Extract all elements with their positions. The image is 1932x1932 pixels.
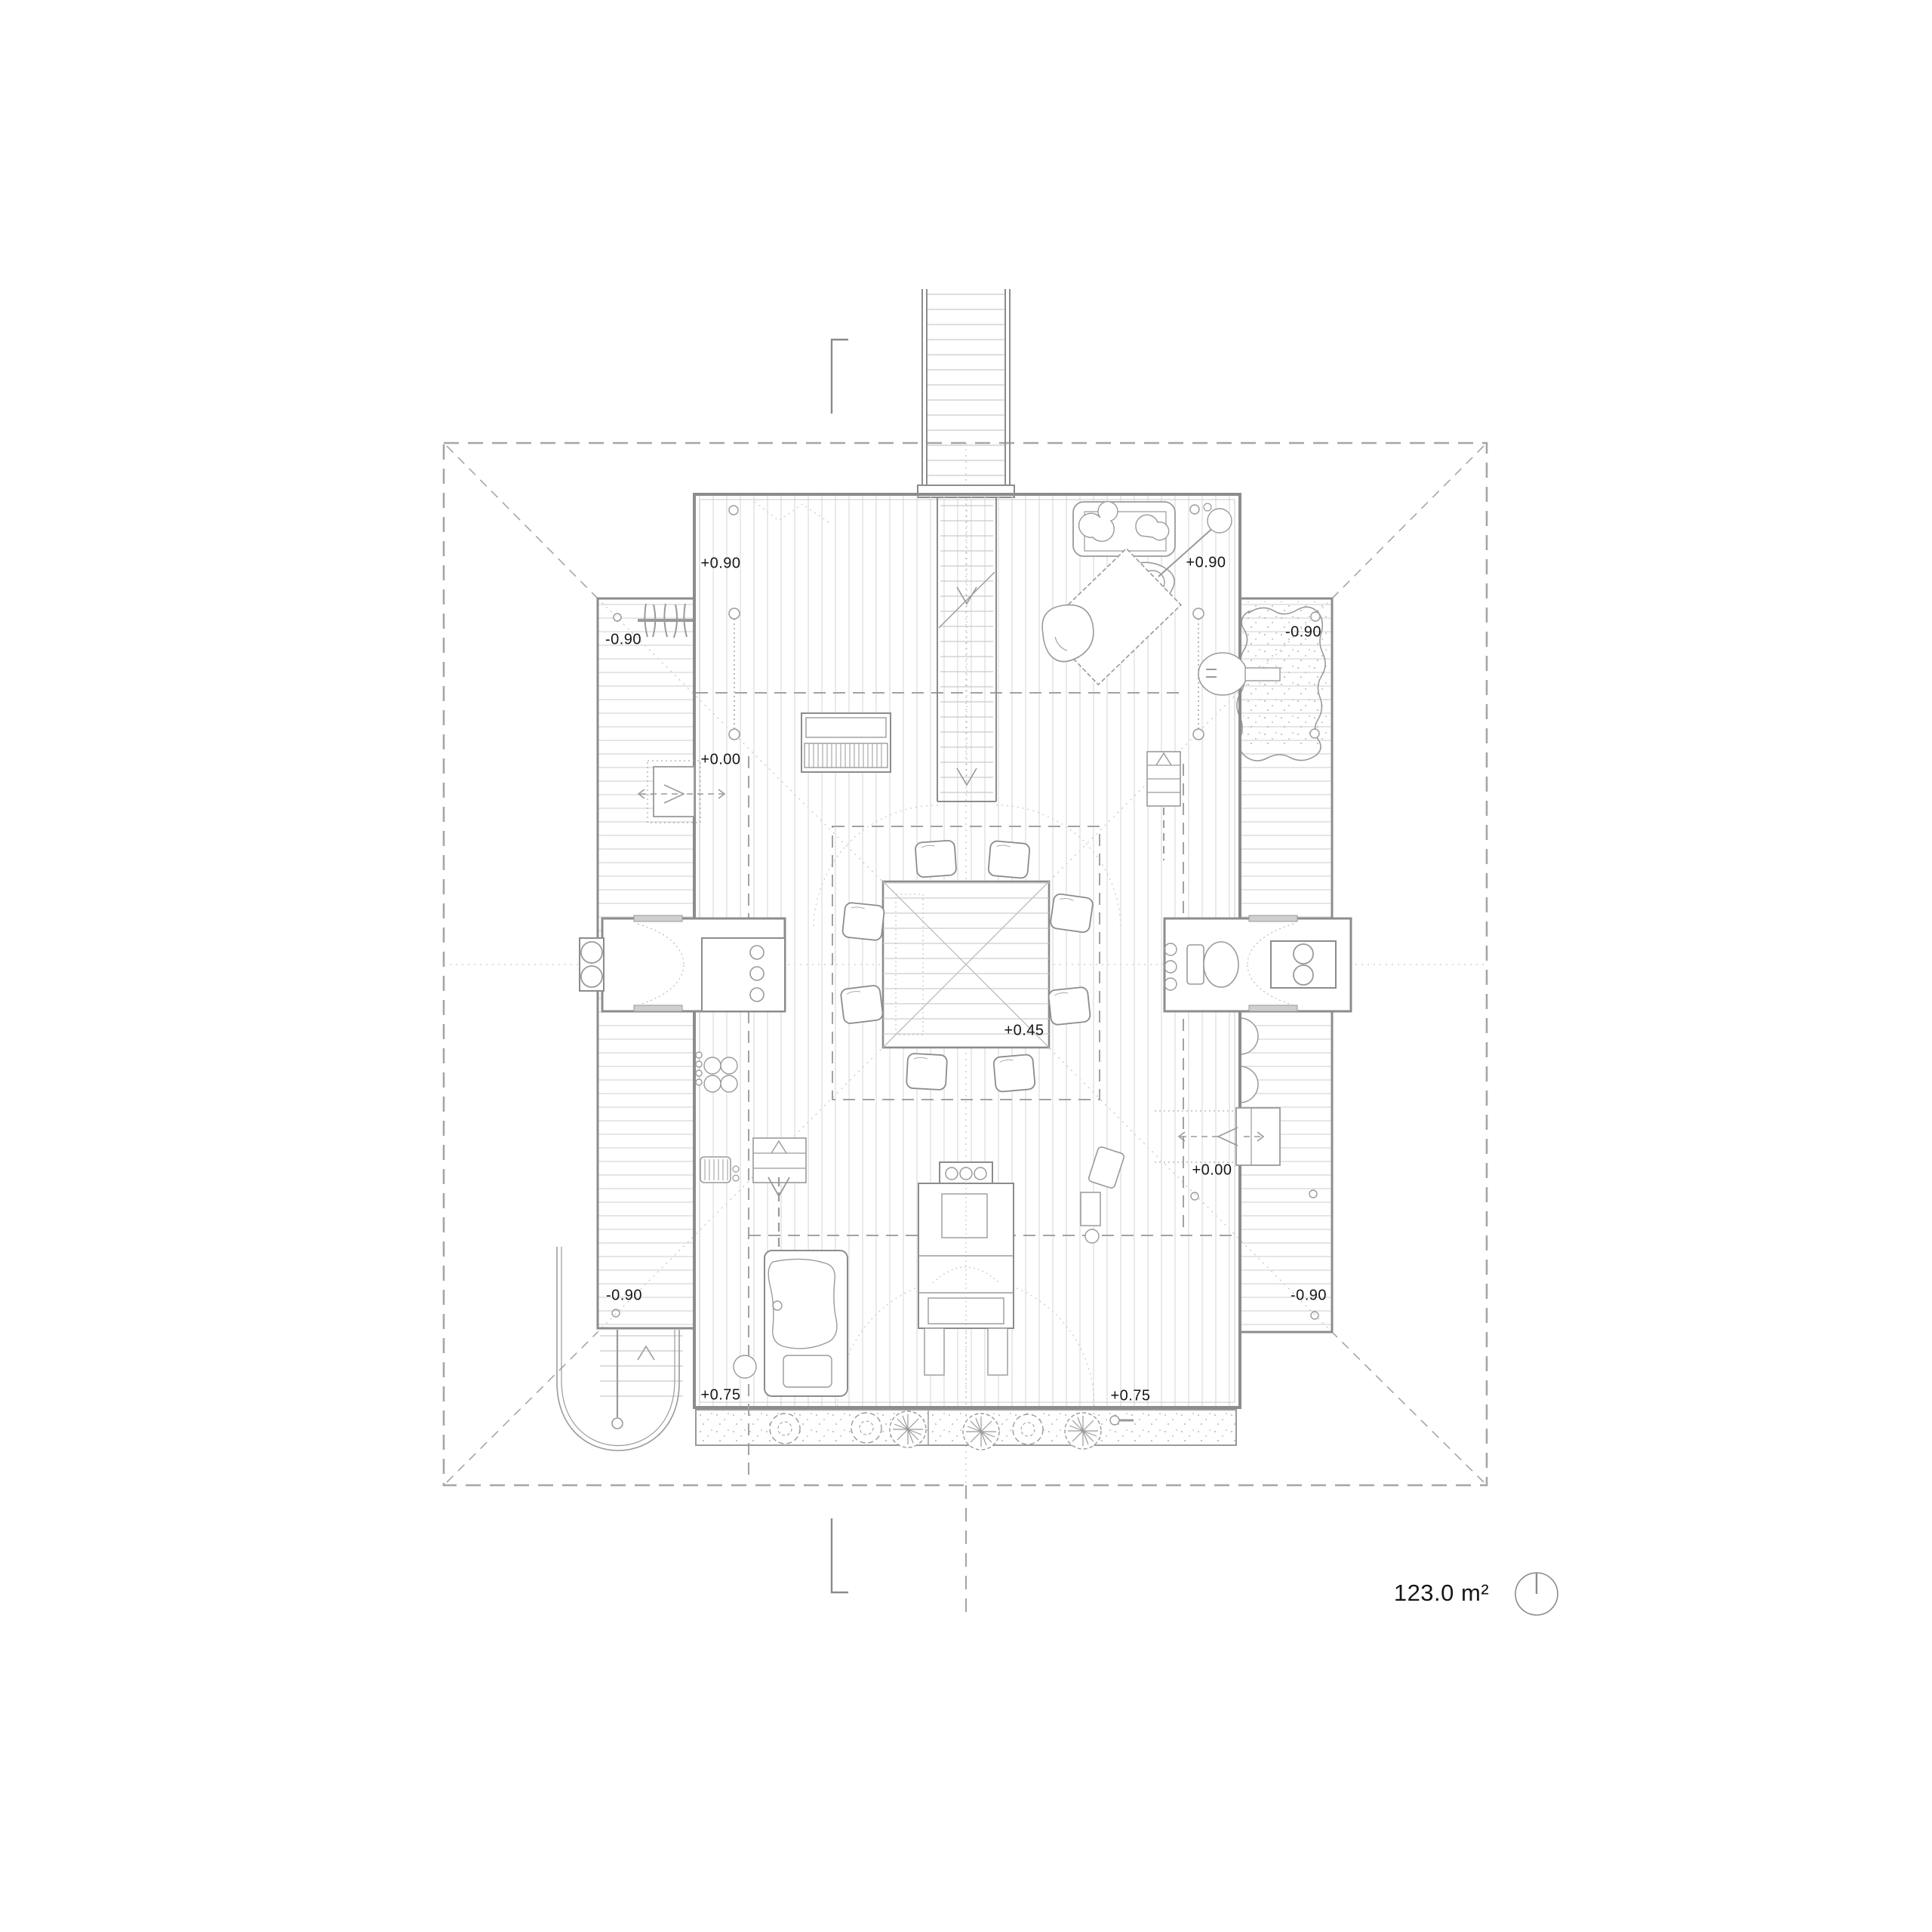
level-label-terrace-right: +0.75 xyxy=(1110,1388,1150,1405)
level-label-right-wing-bottom: -0.90 xyxy=(1291,1287,1327,1305)
level-label-mid-left: +0.00 xyxy=(700,752,740,769)
floor-area-label: 123.0 m² xyxy=(1394,1580,1489,1607)
shower-basin xyxy=(1198,653,1247,695)
plant-icon xyxy=(851,1413,881,1443)
plant-icon xyxy=(890,1411,926,1447)
left-bumpout-room xyxy=(580,915,785,1011)
internal-stair xyxy=(937,497,996,801)
plant-icon xyxy=(1013,1414,1043,1444)
toilet xyxy=(1187,942,1238,987)
level-label-terrace-left: +0.75 xyxy=(700,1387,740,1404)
level-label-left-wing-top: -0.90 xyxy=(605,632,641,649)
level-label-upper-right: +0.90 xyxy=(1186,555,1226,572)
ball xyxy=(734,1355,756,1378)
counter-left xyxy=(702,938,785,1011)
north-indicator-icon xyxy=(1515,1573,1558,1615)
level-label-right-wing-top: -0.90 xyxy=(1285,624,1321,641)
planter-strip xyxy=(696,1410,1236,1450)
piano xyxy=(801,713,891,772)
level-label-upper-left: +0.90 xyxy=(700,555,740,573)
right-bumpout-room xyxy=(1164,915,1351,1011)
level-label-left-wing-bottom: -0.90 xyxy=(606,1287,642,1305)
plant-icon xyxy=(1065,1413,1101,1449)
outdoor-stove-right xyxy=(1271,941,1336,988)
entry-walkway xyxy=(918,289,1014,497)
floor-plan-canvas: +0.90 +0.90 -0.90 -0.90 +0.00 +0.45 +0.0… xyxy=(0,0,1932,1932)
plant-icon xyxy=(963,1414,999,1450)
level-label-platform: +0.45 xyxy=(1004,1023,1044,1040)
level-label-mid-right: +0.00 xyxy=(1192,1162,1232,1180)
floor-plan-drawing xyxy=(0,0,1932,1932)
plant-bench xyxy=(1073,502,1175,556)
plant-icon xyxy=(770,1414,800,1444)
